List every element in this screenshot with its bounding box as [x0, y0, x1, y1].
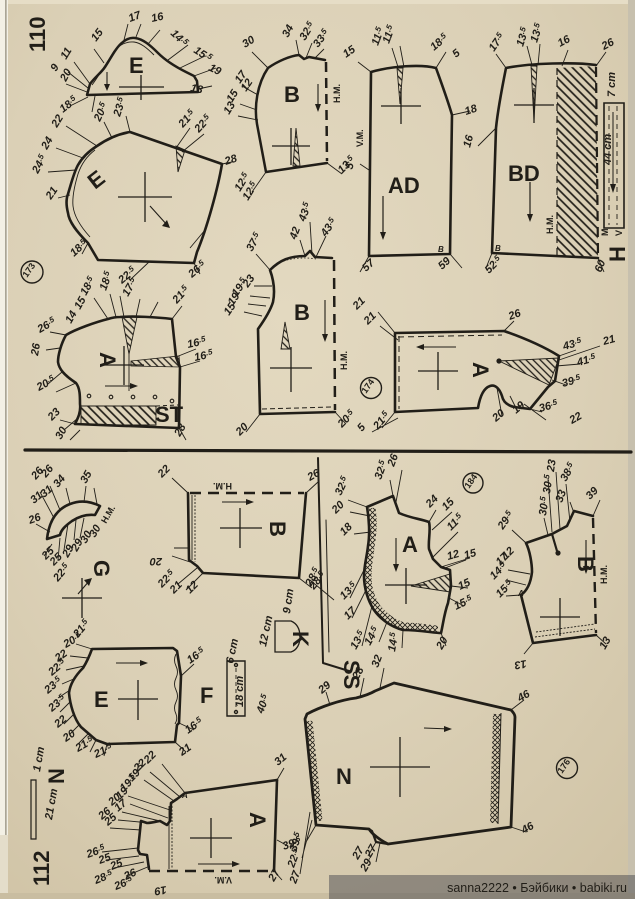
svg-text:B: B — [284, 82, 300, 107]
svg-text:A: A — [468, 362, 493, 378]
svg-text:sanna2222 • Бэйбики • babiki.r: sanna2222 • Бэйбики • babiki.ru — [447, 881, 627, 895]
svg-text:7 cm: 7 cm — [606, 72, 618, 97]
svg-text:H.M.: H.M. — [332, 84, 342, 103]
svg-text:G: G — [89, 560, 114, 577]
svg-text:K: K — [288, 631, 313, 647]
svg-text:13: 13 — [513, 657, 527, 671]
svg-text:B: B — [294, 300, 310, 325]
svg-text:H.M.: H.M. — [339, 351, 349, 370]
svg-text:B: B — [265, 521, 290, 537]
svg-text:E: E — [94, 687, 109, 712]
svg-text:B: B — [438, 245, 444, 254]
svg-text:H: H — [605, 246, 630, 262]
svg-text:20: 20 — [149, 555, 163, 567]
svg-text:V: V — [614, 230, 624, 236]
svg-text:AD: AD — [388, 173, 420, 198]
svg-text:110: 110 — [25, 17, 50, 53]
svg-text:23: 23 — [545, 459, 559, 474]
svg-text:B: B — [495, 244, 501, 253]
svg-text:H.M.: H.M. — [545, 215, 555, 234]
svg-text:H.M.: H.M. — [213, 481, 232, 491]
svg-text:E: E — [129, 53, 144, 78]
svg-text:N: N — [44, 768, 69, 784]
svg-text:A: A — [402, 532, 418, 557]
svg-text:44 cm: 44 cm — [602, 134, 614, 166]
svg-text:112: 112 — [29, 851, 54, 887]
svg-text:A: A — [245, 812, 270, 828]
svg-text:V.M.: V.M. — [214, 875, 232, 885]
svg-text:F: F — [200, 683, 213, 708]
svg-text:N: N — [336, 764, 352, 789]
svg-text:A: A — [181, 791, 188, 800]
svg-text:A: A — [517, 589, 524, 598]
svg-text:M: M — [600, 229, 610, 237]
svg-text:18 cm: 18 cm — [234, 676, 246, 707]
svg-text:V.M.: V.M. — [355, 129, 365, 147]
svg-text:BD: BD — [508, 161, 540, 186]
svg-text:H.M.: H.M. — [599, 565, 609, 584]
